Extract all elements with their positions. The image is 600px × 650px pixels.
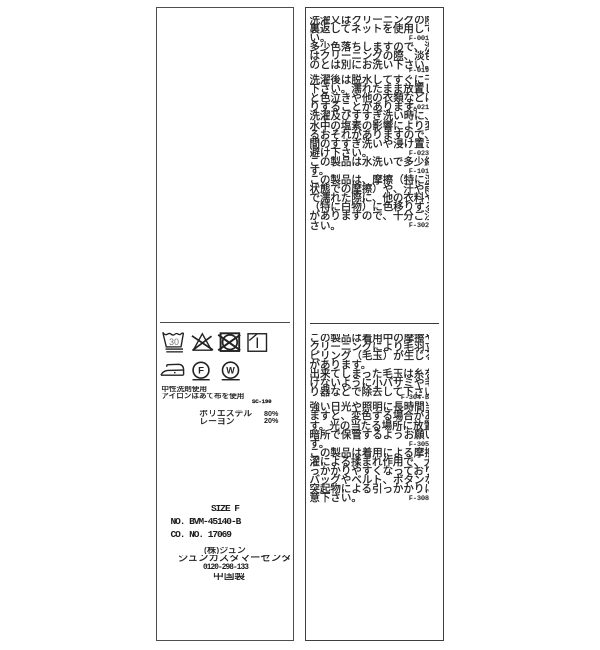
svg-text:F: F bbox=[198, 366, 204, 377]
svg-text:W: W bbox=[226, 366, 235, 376]
svg-text:30: 30 bbox=[169, 337, 179, 347]
